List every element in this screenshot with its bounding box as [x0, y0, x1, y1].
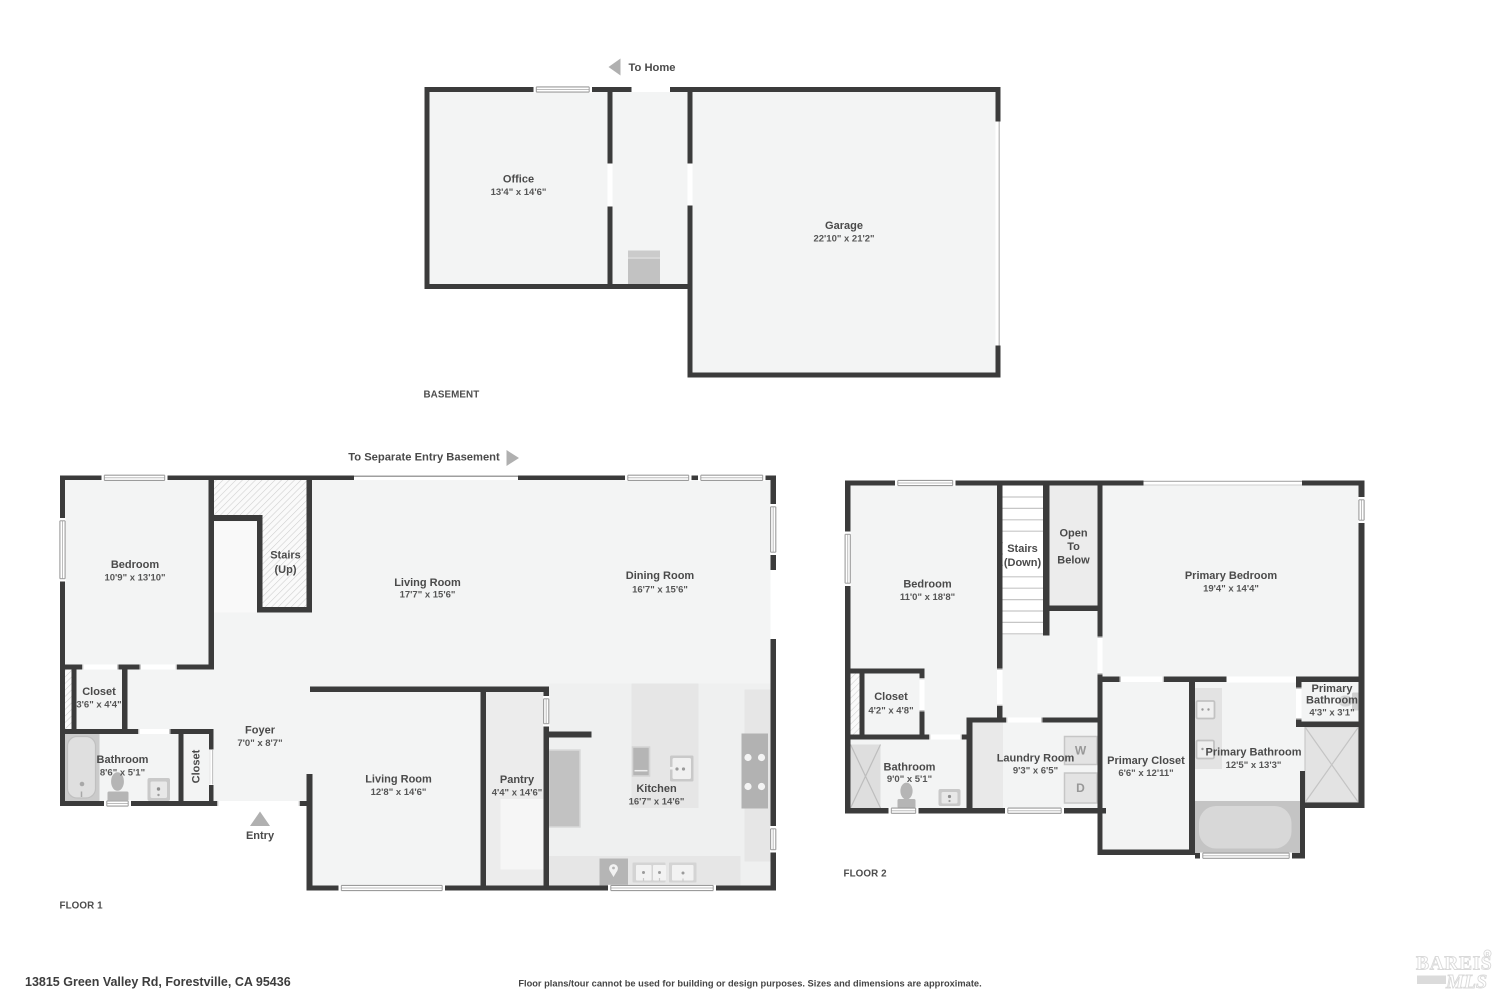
- svg-text:Closet: Closet: [82, 686, 116, 698]
- svg-text:19'4" x 14'4": 19'4" x 14'4": [1203, 584, 1259, 595]
- svg-text:10'9" x 13'10": 10'9" x 13'10": [104, 573, 165, 584]
- svg-text:Living Room: Living Room: [394, 577, 461, 589]
- svg-text:Primary Closet: Primary Closet: [1107, 755, 1185, 767]
- svg-text:Dining Room: Dining Room: [626, 570, 695, 582]
- svg-text:16'7" x 14'6": 16'7" x 14'6": [629, 797, 685, 808]
- svg-text:Primary: Primary: [1312, 683, 1354, 695]
- svg-text:12'8" x 14'6": 12'8" x 14'6": [371, 787, 427, 798]
- svg-text:BASEMENT: BASEMENT: [424, 390, 480, 401]
- svg-text:To Home: To Home: [629, 62, 676, 74]
- svg-text:4'4" x 14'6": 4'4" x 14'6": [492, 788, 543, 799]
- svg-text:3'6" x 4'4": 3'6" x 4'4": [76, 700, 121, 711]
- svg-text:Bathroom: Bathroom: [97, 754, 149, 766]
- svg-text:22'10" x 21'2": 22'10" x 21'2": [813, 234, 874, 245]
- svg-text:Garage: Garage: [825, 220, 863, 232]
- svg-text:Primary Bathroom: Primary Bathroom: [1206, 747, 1302, 759]
- svg-text:6'6" x 12'11": 6'6" x 12'11": [1118, 768, 1173, 779]
- svg-text:Below: Below: [1057, 555, 1090, 567]
- svg-text:16'7" x 15'6": 16'7" x 15'6": [632, 585, 688, 596]
- svg-text:R: R: [1486, 952, 1490, 958]
- svg-text:Bathroom: Bathroom: [884, 762, 936, 774]
- svg-text:13'4" x 14'6": 13'4" x 14'6": [491, 187, 547, 198]
- svg-text:Living Room: Living Room: [365, 774, 432, 786]
- svg-text:To Separate Entry Basement: To Separate Entry Basement: [348, 452, 500, 464]
- svg-text:13815 Green Valley Rd, Forestv: 13815 Green Valley Rd, Forestville, CA 9…: [25, 975, 291, 989]
- svg-text:Bedroom: Bedroom: [903, 579, 952, 591]
- svg-text:FLOOR 1: FLOOR 1: [60, 901, 104, 912]
- svg-text:Bedroom: Bedroom: [111, 559, 160, 571]
- svg-text:Laundry Room: Laundry Room: [997, 753, 1075, 765]
- svg-text:4'2" x 4'8": 4'2" x 4'8": [868, 706, 913, 717]
- svg-text:Stairs: Stairs: [1007, 543, 1038, 555]
- svg-text:(Down): (Down): [1004, 557, 1042, 569]
- svg-text:(Up): (Up): [275, 564, 297, 576]
- svg-text:To: To: [1067, 541, 1080, 553]
- svg-text:Primary Bedroom: Primary Bedroom: [1185, 570, 1278, 582]
- svg-text:17'7" x 15'6": 17'7" x 15'6": [400, 590, 456, 601]
- svg-text:Bathroom: Bathroom: [1306, 695, 1358, 707]
- svg-text:8'6" x 5'1": 8'6" x 5'1": [100, 768, 145, 779]
- svg-text:Kitchen: Kitchen: [636, 783, 677, 795]
- svg-text:D: D: [1076, 781, 1085, 795]
- svg-text:Pantry: Pantry: [500, 774, 535, 786]
- svg-text:9'0" x 5'1": 9'0" x 5'1": [887, 774, 932, 785]
- svg-text:Stairs: Stairs: [270, 550, 301, 562]
- svg-text:Foyer: Foyer: [245, 725, 276, 737]
- svg-text:9'3" x 6'5": 9'3" x 6'5": [1013, 766, 1058, 777]
- svg-text:Open: Open: [1059, 528, 1087, 540]
- svg-text:12'5" x 13'3": 12'5" x 13'3": [1226, 760, 1282, 771]
- svg-text:4'3" x 3'1": 4'3" x 3'1": [1309, 708, 1354, 719]
- svg-text:Entry: Entry: [246, 830, 275, 842]
- svg-text:Closet: Closet: [191, 749, 203, 783]
- svg-text:MLS: MLS: [1445, 971, 1487, 993]
- svg-text:FLOOR 2: FLOOR 2: [844, 869, 888, 880]
- svg-text:W: W: [1075, 744, 1087, 758]
- svg-text:Office: Office: [503, 174, 534, 186]
- svg-text:7'0" x 8'7": 7'0" x 8'7": [237, 738, 282, 749]
- svg-text:Closet: Closet: [874, 691, 908, 703]
- svg-text:11'0" x 18'8": 11'0" x 18'8": [900, 592, 955, 603]
- svg-text:Floor plans/tour cannot be use: Floor plans/tour cannot be used for buil…: [518, 979, 981, 989]
